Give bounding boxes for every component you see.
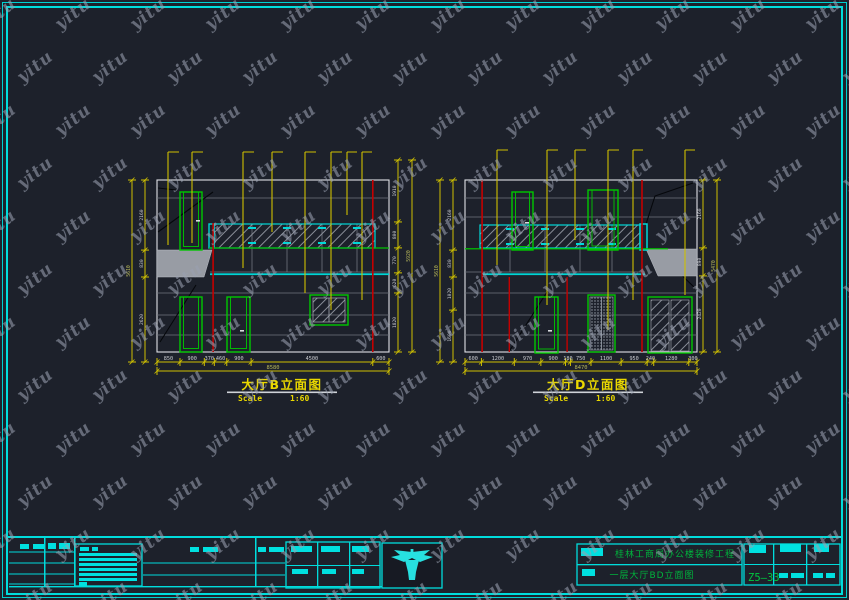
cad-sheet: 8509003704609004500600858060012009709001…	[0, 0, 849, 600]
dimension-text: 600	[376, 356, 385, 362]
dimension-text: 750	[576, 356, 585, 362]
dimension-text: 2620	[139, 314, 145, 325]
window-hatched	[310, 295, 348, 325]
dimension-text: 240	[646, 356, 655, 362]
stippled-door	[588, 295, 615, 352]
dimension-text: 830	[139, 259, 145, 268]
left-scale-value: 1:60	[290, 394, 309, 403]
dimension-text: 830	[447, 259, 453, 268]
left-scale-label: Scale	[238, 394, 262, 403]
dimension-text: 8580	[267, 365, 280, 371]
title-block: 桂林工商局办公楼装修工程 一层大厅BD立面图 Z5—33	[7, 536, 842, 588]
project-name: 桂林工商局办公楼装修工程	[615, 548, 735, 560]
dimension-text: 370	[205, 356, 214, 362]
dimension-text: 970	[523, 356, 532, 362]
right-scale-label: Scale	[544, 394, 568, 403]
dimension-text: 180	[563, 356, 572, 362]
dimension-text: 850	[164, 356, 173, 362]
dimension-text: 460	[216, 356, 225, 362]
dimension-text: 600	[469, 356, 478, 362]
right-drawing-title: 大厅D立面图	[547, 377, 629, 392]
wall-panel-fill	[646, 249, 697, 276]
dimension-text: 1910	[392, 185, 398, 196]
dimension-text: 900	[549, 356, 558, 362]
dimension-text: 1820	[392, 317, 398, 328]
double-door-hatched	[648, 297, 692, 353]
dimension-text: 2160	[139, 209, 145, 220]
dimension-text: 5610	[126, 265, 132, 277]
dimension-text: 300	[688, 356, 697, 362]
dimension-text: 800	[392, 231, 398, 240]
left-elevation-drawing	[157, 152, 389, 352]
dimension-text: 5610	[434, 265, 440, 277]
dimension-text: 2160	[697, 208, 703, 219]
right-scale-value: 1:60	[596, 394, 615, 403]
dimension-text: 8470	[575, 365, 588, 371]
dimension-text: 950	[629, 356, 638, 362]
sheet-number: Z5—33	[748, 572, 780, 584]
dimension-text: 1020	[447, 288, 453, 299]
dimension-text: 890	[697, 258, 703, 267]
ceiling-band	[214, 224, 375, 248]
dimension-text: 1100	[600, 356, 613, 362]
dimension-text: 1200	[492, 356, 505, 362]
dimension-text: 5920	[406, 250, 412, 262]
dimension-text: 620	[392, 279, 398, 288]
dimension-text: 2420	[697, 308, 703, 319]
dimension-chains: 8509003704609004500600858060012009709001…	[126, 158, 721, 376]
left-drawing-title: 大厅B立面图	[241, 377, 322, 392]
dimension-text: 1600	[447, 330, 453, 341]
dimension-text: 770	[392, 256, 398, 265]
drawing-canvas: 8509003704609004500600858060012009709001…	[0, 0, 849, 600]
dimension-text: 2160	[447, 209, 453, 220]
dimension-text: 900	[187, 356, 196, 362]
right-elevation-drawing	[465, 150, 697, 353]
dimension-text: 900	[234, 356, 243, 362]
left-drawing-caption: 大厅B立面图 Scale 1:60	[227, 377, 337, 403]
right-drawing-caption: 大厅D立面图 Scale 1:60	[533, 377, 643, 403]
dimension-text: 4500	[306, 356, 319, 362]
dimension-text: 1280	[665, 356, 678, 362]
sheet-name: 一层大厅BD立面图	[609, 569, 694, 581]
wall-panel-fill	[157, 250, 212, 277]
dimension-text: 5470	[711, 260, 717, 272]
